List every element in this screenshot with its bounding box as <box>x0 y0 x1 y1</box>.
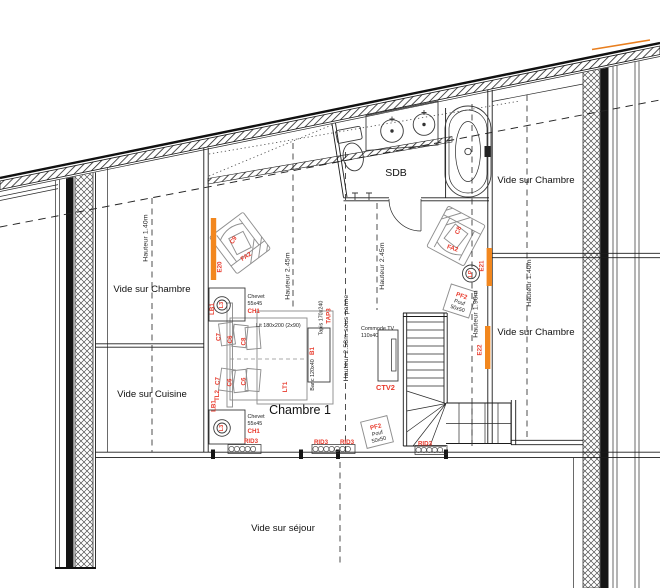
room-label-vide-cuisine: Vide sur Cuisine <box>117 389 187 400</box>
nightstand-top-code: CH1 <box>248 308 261 315</box>
floor-plan-canvas: PF2 Pouf 50x50 PF2 Pouf 50x50 <box>0 0 660 588</box>
wall-light-code: TL2 <box>214 389 221 401</box>
nightstand-bottom-size: 55x45 <box>248 421 263 427</box>
height-label-190: Hauteur 1.90m <box>473 290 480 338</box>
bathtub-faucet <box>485 146 491 157</box>
radiator-code-2: RID3 <box>314 439 329 446</box>
pouf-2: PF2 Pouf 50x50 <box>361 416 394 449</box>
cushion-c6-bottom-2: C6 <box>241 377 248 385</box>
tv-unit-size: 110x40 <box>361 333 378 339</box>
heater-e20 <box>211 218 216 280</box>
bench-label: Banc 120x40 <box>310 359 316 390</box>
room-label-vide-chambre-top-right: Vide sur Chambre <box>497 175 574 186</box>
radiator-code-4: RID3 <box>418 441 433 448</box>
height-label-245-hall: Hauteur 2.45m <box>379 242 386 290</box>
nightstand-top-label: Chevet <box>248 294 266 300</box>
rug-code: TAP3 <box>326 308 333 324</box>
cushion-c6-bottom-1: C6 <box>227 378 234 386</box>
heater-e20-code: E20 <box>217 261 224 273</box>
floor-lamp-code: LP <box>468 270 474 277</box>
left-exterior-wall <box>55 150 96 568</box>
nightstand-lamp-top-code: L3 <box>219 302 225 308</box>
nightstand-bottom <box>209 410 245 444</box>
heater-e22 <box>485 326 490 369</box>
room-label-vide-chambre-bottom-right: Vide sur Chambre <box>497 327 574 338</box>
tv-unit-code: CTV2 <box>376 383 395 392</box>
headboard-code-top: LB1 <box>209 303 216 315</box>
mezzanine-railing <box>96 450 660 460</box>
towel-rail <box>352 193 372 200</box>
right-exterior-wall <box>574 40 640 588</box>
bed-size-label: Lit 180x200 (2x90) <box>256 323 301 329</box>
cushion-c6-top: C6 <box>227 335 234 343</box>
radiator-code-3: RID3 <box>340 439 355 446</box>
bed-code: LT1 <box>282 381 289 392</box>
purlin-beam <box>208 137 452 185</box>
height-label-140-right: Hauteur 1.40m <box>526 259 533 307</box>
heater-e22-code: E22 <box>477 344 484 356</box>
cushion-c8-top: C8 <box>241 337 248 345</box>
staircase <box>403 313 511 446</box>
floor-plan-drawing: PF2 Pouf 50x50 PF2 Pouf 50x50 <box>0 0 660 588</box>
tv-unit-label: Commode TV <box>361 326 395 332</box>
rug-label: Tapis 170x240 <box>319 301 325 336</box>
nightstand-bottom-code: CH1 <box>248 428 261 435</box>
cushion-c8-armchair2: C8 <box>454 225 463 235</box>
heater-e21 <box>487 248 492 286</box>
room-label-vide-sejour: Vide sur séjour <box>251 523 316 534</box>
toilet <box>335 126 368 173</box>
cushion-c7-bottom: C7 <box>215 376 222 384</box>
heater-e21-code: E21 <box>479 260 486 272</box>
room-label-sdb: SDB <box>385 167 407 179</box>
nightstand-top-size: 55x45 <box>248 301 263 307</box>
room-label-chambre1: Chambre 1 <box>269 403 331 417</box>
height-label-258-panne: Hauteur 2.58m sous panne <box>343 295 350 382</box>
radiator-code-1: RID3 <box>244 438 259 445</box>
height-label-140-left: Hauteur 1.40m <box>143 214 150 262</box>
cushion-c7-top: C7 <box>216 332 223 340</box>
bed <box>227 303 307 407</box>
roof-mask <box>0 0 660 178</box>
bathtub <box>445 106 491 197</box>
nightstand-bottom-label: Chevet <box>248 414 266 420</box>
cushion-c9-armchair1: C9 <box>229 235 239 246</box>
height-label-245-bed: Hauteur 2.45m <box>285 252 292 300</box>
nightstand-lamp-bottom-code: L3 <box>219 425 225 431</box>
tv-unit <box>378 330 398 381</box>
room-label-vide-chambre-left: Vide sur Chambre <box>113 284 190 295</box>
sdb-door <box>389 199 421 231</box>
bench-code: B1 <box>309 346 316 354</box>
armchair-2 <box>427 206 486 266</box>
